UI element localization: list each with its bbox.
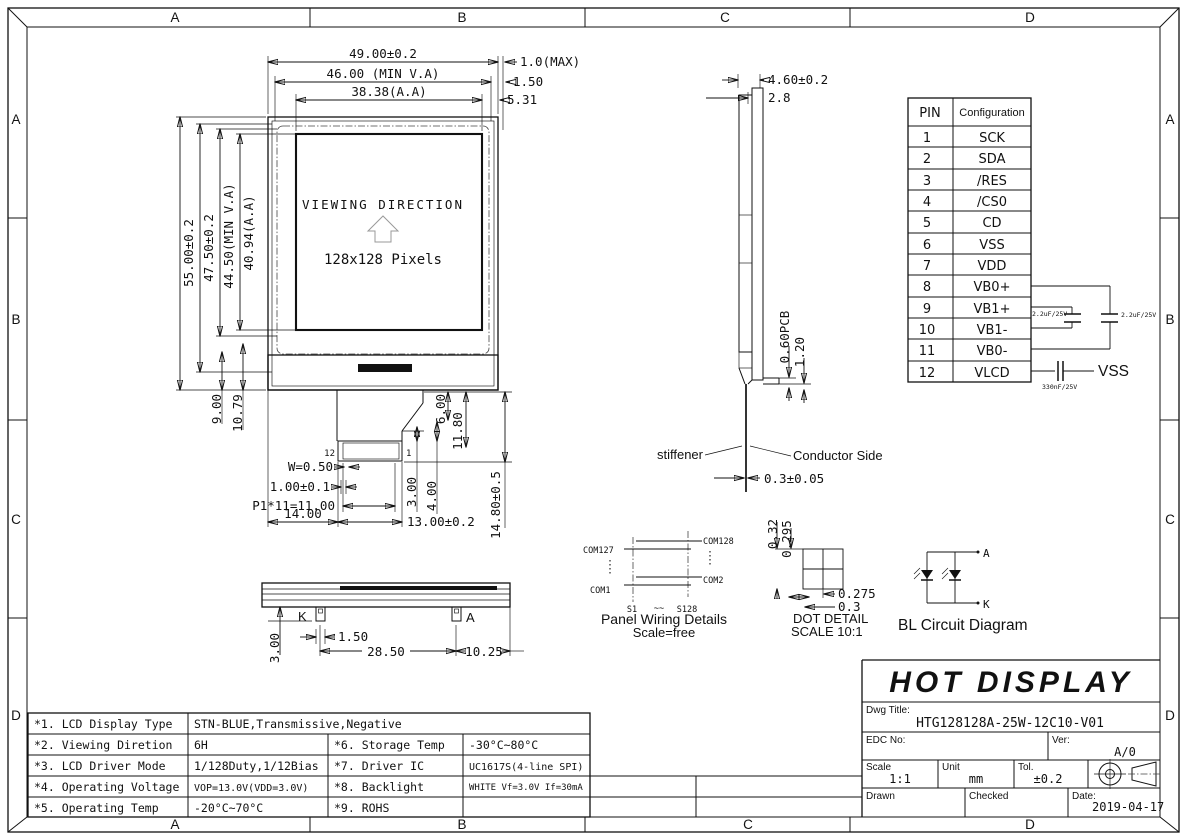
pin-num: 12 (919, 366, 936, 381)
pin-num: 4 (923, 195, 931, 210)
connector-pin1-label: 1 (406, 449, 411, 459)
viewing-direction-arrow-icon (368, 216, 398, 242)
grid-col-bottom-a: A (170, 817, 179, 832)
pin-num: 11 (919, 344, 936, 359)
pin-name: VDD (978, 259, 1007, 274)
grid-col-bottom-c: C (743, 817, 753, 832)
connector-pin12-label: 12 (324, 449, 335, 459)
pin-name: CD (982, 216, 1001, 231)
spec-value: UC1617S(4-line SPI) (469, 762, 583, 773)
grid-col-top-d: D (1025, 10, 1035, 25)
grid-row-right-b: B (1165, 312, 1174, 327)
company-logo: HOT DISPLAY (889, 666, 1132, 699)
dim-right-2: 1.50 (513, 74, 543, 89)
bottom-view: K A 3.00 1.50 28.50 10.25 (262, 583, 524, 663)
dim-width-aa: 38.38(A.A) (351, 84, 426, 99)
dim-bv-2850: 28.50 (367, 644, 405, 659)
grid-row-left-c: C (11, 512, 21, 527)
spec-table: *1. LCD Display Type STN-BLUE,Transmissi… (28, 713, 862, 817)
grid-row-left-a: A (11, 112, 20, 127)
com1-label: COM1 (590, 586, 610, 596)
ver-value: A/0 (1114, 745, 1136, 759)
pin-num: 7 (923, 259, 931, 274)
drawing-sheet: A B C D A B C D A B C D A B C D 49.00±0.… (0, 0, 1187, 840)
dot-detail: 0.32 0.295 0.275 0.3 DOT DETAIL SCALE 10… (765, 519, 876, 639)
dwg-title-label: Dwg Title: (866, 705, 910, 716)
spec-key: *6. Storage Temp (334, 738, 445, 752)
spec-value: 6H (194, 738, 208, 752)
spec-key: *8. Backlight (334, 780, 424, 794)
pin-name: VB0+ (974, 280, 1011, 295)
pin-table: PIN Configuration 1SCK 2SDA 3/RES 4/CS0 … (908, 98, 1031, 382)
dim-right-1: 1.0(MAX) (520, 54, 580, 69)
cap2-value: 2.2uF/25V (1121, 311, 1156, 319)
dim-bv-300: 3.00 (267, 633, 282, 663)
spec-key: *3. LCD Driver Mode (34, 759, 166, 773)
panel-wiring-scale: Scale=free (633, 625, 696, 640)
spec-key: *9. ROHS (334, 801, 389, 815)
grid-col-bottom-b: B (457, 817, 466, 832)
grid-row-left-b: B (11, 312, 20, 327)
bl-circuit-diagram: A K BL Circuit Diagram (898, 547, 1028, 634)
edc-no-label: EDC No: (866, 735, 905, 746)
dim-right-3: 5.31 (507, 92, 537, 107)
backlight-a-label: A (466, 610, 475, 625)
grid-row-right-a: A (1165, 112, 1174, 127)
pin-table-header-pin: PIN (919, 106, 940, 121)
pin-num: 5 (923, 216, 931, 231)
scale-label: Scale (866, 762, 891, 773)
spec-key: *5. Operating Temp (34, 801, 159, 815)
pin-name: VB1- (977, 323, 1008, 338)
dim-width-outer: 49.00±0.2 (349, 46, 417, 61)
dim-14: 14.00 (284, 506, 322, 521)
dim-side-28: 2.8 (768, 90, 791, 105)
dim-4: 4.00 (424, 481, 439, 511)
dim-1-20: 1.20 (792, 337, 807, 367)
unit-value: mm (969, 772, 983, 786)
dim-bottom-1: 9.00 (209, 394, 224, 424)
scale-value: 1:1 (889, 772, 911, 786)
spec-value: -30°C~80°C (469, 738, 538, 752)
pin-name: /CS0 (977, 195, 1007, 210)
pin-num: 2 (923, 152, 931, 167)
bl-cathode-label: K (983, 598, 990, 611)
checked-label: Checked (969, 791, 1008, 802)
dot-detail-scale: SCALE 10:1 (791, 624, 863, 639)
cap1-value: 2.2uF/25V (1032, 310, 1067, 318)
dim-14-8: 14.80±0.5 (488, 471, 503, 539)
bl-circuit-title: BL Circuit Diagram (898, 617, 1028, 634)
grid-col-top-a: A (170, 10, 179, 25)
grid-row-right-c: C (1165, 512, 1175, 527)
unit-label: Unit (942, 762, 960, 773)
conductor-side-label: Conductor Side (793, 448, 883, 463)
grid-col-top-b: B (457, 10, 466, 25)
grid-col-bottom-d: D (1025, 817, 1035, 832)
front-view-dimensions: 49.00±0.2 46.00 (MIN V.A) 38.38(A.A) 1.0… (176, 46, 580, 539)
spec-key: *7. Driver IC (334, 759, 424, 773)
spec-value: STN-BLUE,Transmissive,Negative (194, 717, 402, 731)
dim-side-thickness: 4.60±0.2 (768, 72, 828, 87)
dim-pcb: 0.60PCB (777, 311, 792, 364)
dim-height-va: 44.50(MIN V.A) (221, 183, 236, 288)
dim-11-8: 11.80 (450, 412, 465, 450)
drawn-label: Drawn (866, 791, 895, 802)
drawing-canvas: A B C D A B C D A B C D A B C D 49.00±0.… (0, 0, 1187, 840)
viewing-direction-label: VIEWING DIRECTION (302, 197, 464, 212)
dim-height-2: 47.50±0.2 (201, 214, 216, 282)
dim-13: 13.00±0.2 (407, 514, 475, 529)
pin-name: VB0- (977, 344, 1008, 359)
grid-col-top-c: C (720, 10, 730, 25)
spec-key: *4. Operating Voltage (34, 780, 179, 794)
dim-dot-032: 0.32 (765, 519, 780, 549)
panel-wiring-details: COM127 COM128 COM1 COM2 S1 ~~ S128 Panel… (583, 531, 734, 640)
bl-anode-label: A (983, 547, 990, 560)
pin-name: /RES (977, 174, 1007, 189)
ver-label: Ver: (1052, 735, 1070, 746)
dim-6: 6.00 (433, 394, 448, 424)
stiffener-label: stiffener (657, 447, 704, 462)
com127-label: COM127 (583, 546, 614, 556)
title-block: HOT DISPLAY Dwg Title: HTG128128A-25W-12… (862, 660, 1164, 817)
spec-value: 1/128Duty,1/12Bias (194, 759, 319, 773)
dim-bv-1025: 10.25 (465, 644, 503, 659)
dim-bv-150: 1.50 (338, 629, 368, 644)
spec-value: VOP=13.0V(VDD=3.0V) (194, 783, 308, 794)
dim-fpc-thickness: 0.3±0.05 (764, 471, 824, 486)
tol-value: ±0.2 (1034, 772, 1063, 786)
tol-label: Tol. (1018, 762, 1034, 773)
date-value: 2019-04-17 (1092, 800, 1164, 814)
dwg-title-value: HTG128128A-25W-12C10-V01 (916, 716, 1104, 731)
pin-name: SCK (979, 131, 1005, 146)
pin-table-header-cfg: Configuration (959, 107, 1024, 119)
capacitor-circuit: 2.2uF/25V 2.2uF/25V 330nF/25V VSS (1031, 286, 1156, 391)
pin-num: 3 (923, 174, 931, 189)
dim-3: 3.00 (404, 477, 419, 507)
pin-num: 10 (919, 323, 936, 338)
com2-label: COM2 (703, 576, 723, 586)
dim-pin-width: W=0.50 (288, 459, 333, 474)
pin-name: VB1+ (974, 302, 1011, 317)
spec-key: *1. LCD Display Type (34, 717, 173, 731)
pin-num: 6 (923, 238, 931, 253)
dim-dot-0295: 0.295 (779, 520, 794, 558)
com128-label: COM128 (703, 537, 734, 547)
pixels-label: 128x128 Pixels (324, 252, 442, 268)
projection-symbol-icon (1094, 759, 1160, 789)
vss-label: VSS (1098, 363, 1129, 380)
side-view: 4.60±0.2 2.8 0.60PCB 1.20 stiffener Cond… (657, 72, 883, 492)
led-icon (921, 570, 933, 579)
led-icon (949, 570, 961, 579)
dim-bottom-2: 10.79 (230, 394, 245, 432)
grid-row-right-d: D (1165, 708, 1175, 723)
pin-name: VLCD (974, 366, 1009, 381)
spec-value: -20°C~70°C (194, 801, 263, 815)
spec-key: *2. Viewing Diretion (34, 738, 172, 752)
dim-height-outer: 55.00±0.2 (181, 219, 196, 287)
spec-value: WHITE Vf=3.0V If=30mA (469, 783, 583, 793)
front-view-linework (268, 117, 498, 461)
grid-row-left-d: D (11, 708, 21, 723)
pin-num: 1 (923, 131, 931, 146)
pin-name: VSS (979, 238, 1004, 253)
front-view-labels: VIEWING DIRECTION 128x128 Pixels (302, 197, 464, 268)
dim-width-va: 46.00 (MIN V.A) (327, 66, 440, 81)
pin-num: 9 (923, 302, 931, 317)
dim-height-aa: 40.94(A.A) (241, 195, 256, 270)
pin-name: SDA (979, 152, 1006, 167)
cap3-value: 330nF/25V (1042, 383, 1077, 391)
backlight-k-label: K (298, 609, 307, 624)
dim-pin-pitch: 1.00±0.1 (270, 479, 330, 494)
pin-num: 8 (923, 280, 931, 295)
